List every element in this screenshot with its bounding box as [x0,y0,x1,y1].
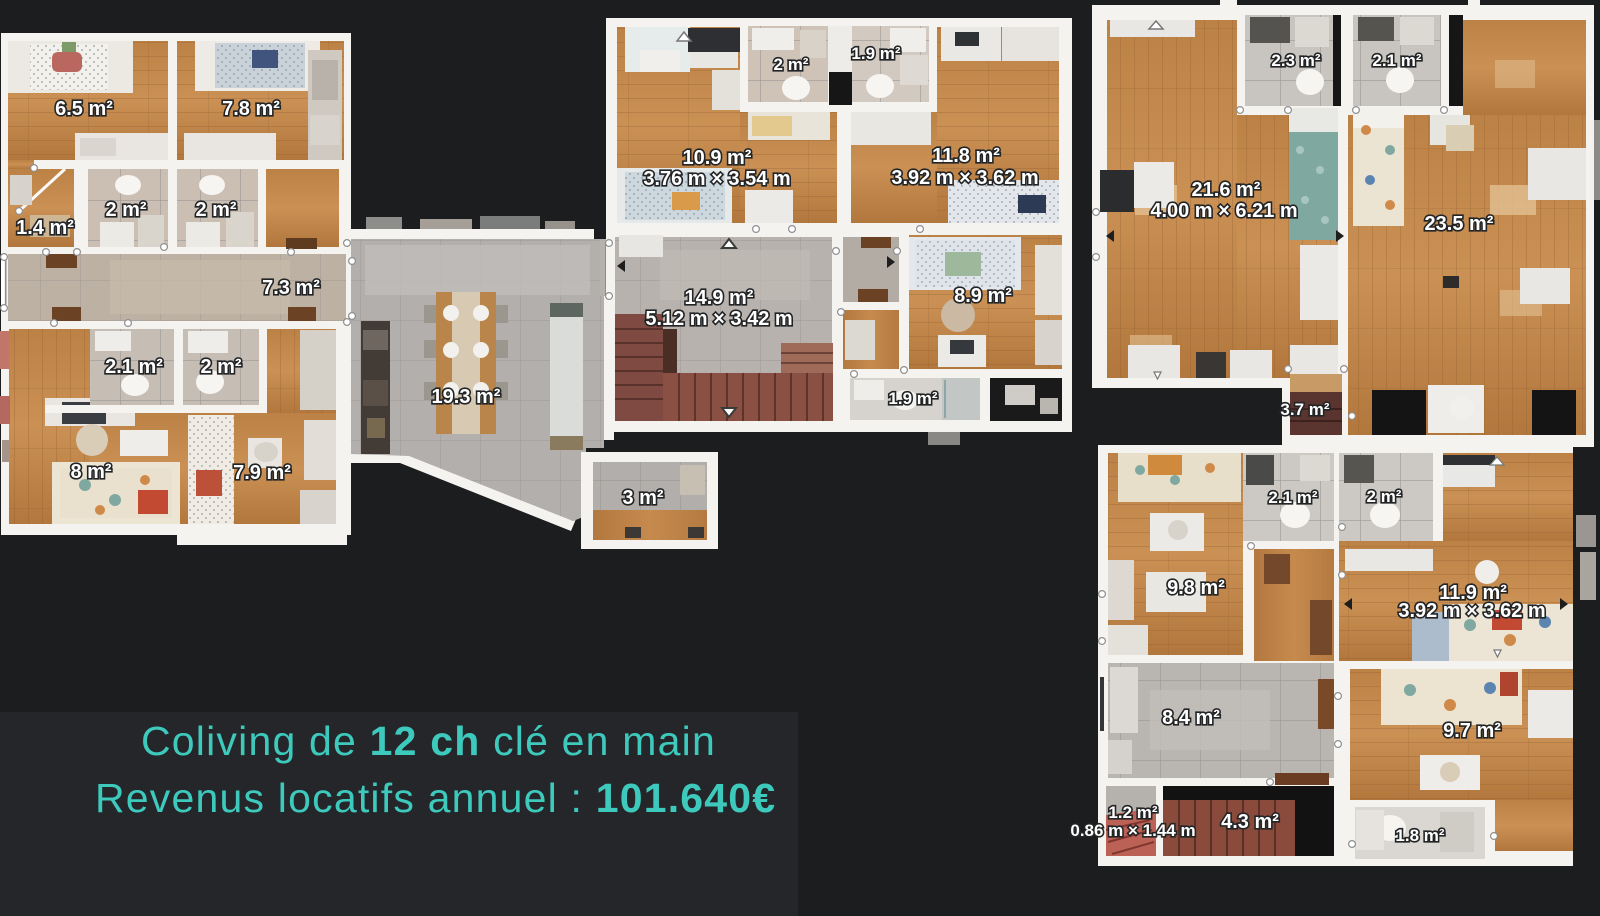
svg-text:Revenus locatifs annuel : 101.: Revenus locatifs annuel : 101.640€ [95,775,776,821]
svg-text:3.92 m × 3.62 m: 3.92 m × 3.62 m [891,167,1038,189]
svg-text:3.7 m²: 3.7 m² [1280,400,1329,419]
svg-text:Coliving de 12 ch clé en main: Coliving de 12 ch clé en main [141,718,716,764]
svg-text:19.3 m²: 19.3 m² [432,386,501,408]
svg-text:2.1 m²: 2.1 m² [1372,51,1421,70]
svg-text:2 m²: 2 m² [1367,487,1402,506]
svg-text:0.86 m × 1.44 m: 0.86 m × 1.44 m [1070,821,1195,840]
svg-text:11.8 m²: 11.8 m² [932,145,1000,167]
svg-text:23.5 m²: 23.5 m² [1425,213,1494,235]
svg-text:2 m²: 2 m² [105,199,146,221]
svg-text:2.1 m²: 2.1 m² [1268,488,1317,507]
svg-text:9.7 m²: 9.7 m² [1443,720,1501,742]
svg-text:10.9 m²: 10.9 m² [683,147,752,169]
svg-text:14.9 m²: 14.9 m² [685,287,754,309]
svg-text:8.9 m²: 8.9 m² [954,285,1012,307]
svg-text:2 m²: 2 m² [200,356,241,378]
svg-text:5.12 m × 3.42 m: 5.12 m × 3.42 m [645,308,792,330]
svg-text:4.3 m²: 4.3 m² [1221,811,1279,833]
svg-text:9.8 m²: 9.8 m² [1167,577,1225,599]
svg-text:2.1 m²: 2.1 m² [105,356,163,378]
svg-text:2 m²: 2 m² [195,199,236,221]
svg-text:3.76 m × 3.54 m: 3.76 m × 3.54 m [643,168,790,190]
svg-text:1.9 m²: 1.9 m² [851,44,900,63]
svg-text:3.92 m × 3.62 m: 3.92 m × 3.62 m [1398,600,1545,622]
svg-text:1.9 m²: 1.9 m² [888,389,937,408]
svg-text:21.6 m²: 21.6 m² [1192,179,1261,201]
svg-text:8 m²: 8 m² [70,461,111,483]
svg-text:1.2 m²: 1.2 m² [1108,803,1157,822]
svg-text:3 m²: 3 m² [622,487,663,509]
svg-text:1.4 m²: 1.4 m² [16,217,74,239]
svg-text:2 m²: 2 m² [774,55,809,74]
svg-text:7.3 m²: 7.3 m² [262,277,320,299]
svg-text:7.8 m²: 7.8 m² [222,98,280,120]
svg-text:4.00 m × 6.21 m: 4.00 m × 6.21 m [1150,200,1297,222]
svg-text:8.4 m²: 8.4 m² [1162,707,1220,729]
svg-text:1.8 m²: 1.8 m² [1395,826,1444,845]
svg-text:6.5 m²: 6.5 m² [55,98,113,120]
svg-text:7.9 m²: 7.9 m² [233,462,291,484]
svg-text:2.3 m²: 2.3 m² [1271,51,1320,70]
